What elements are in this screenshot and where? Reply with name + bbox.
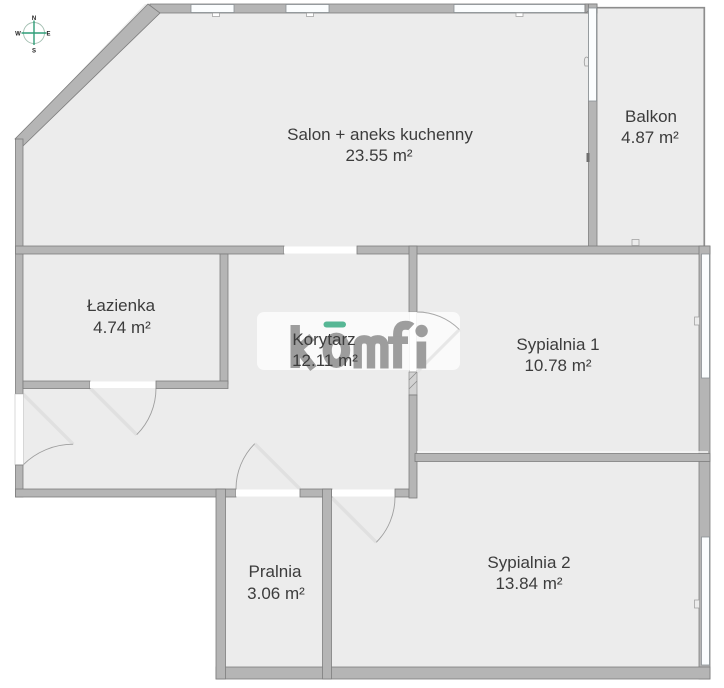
svg-text:13.84 m²: 13.84 m² [495, 574, 562, 593]
svg-text:Salon + aneks kuchenny: Salon + aneks kuchenny [287, 125, 473, 144]
svg-text:3.06 m²: 3.06 m² [247, 584, 305, 603]
svg-text:4.74 m²: 4.74 m² [93, 318, 151, 337]
svg-text:Korytarz: Korytarz [292, 330, 355, 349]
svg-text:12.11 m²: 12.11 m² [292, 351, 358, 370]
svg-text:Sypialnia 2: Sypialnia 2 [487, 553, 570, 572]
svg-text:Łazienka: Łazienka [87, 296, 156, 315]
svg-text:Sypialnia 1: Sypialnia 1 [516, 335, 599, 354]
svg-text:W: W [15, 32, 21, 38]
svg-text:E: E [46, 32, 50, 38]
svg-text:Pralnia: Pralnia [249, 562, 302, 581]
svg-text:Balkon: Balkon [625, 107, 677, 126]
svg-text:10.78 m²: 10.78 m² [524, 356, 591, 375]
svg-text:23.55 m²: 23.55 m² [345, 146, 412, 165]
svg-text:4.87 m²: 4.87 m² [621, 128, 679, 147]
svg-text:N: N [32, 16, 36, 22]
svg-text:S: S [32, 49, 36, 55]
